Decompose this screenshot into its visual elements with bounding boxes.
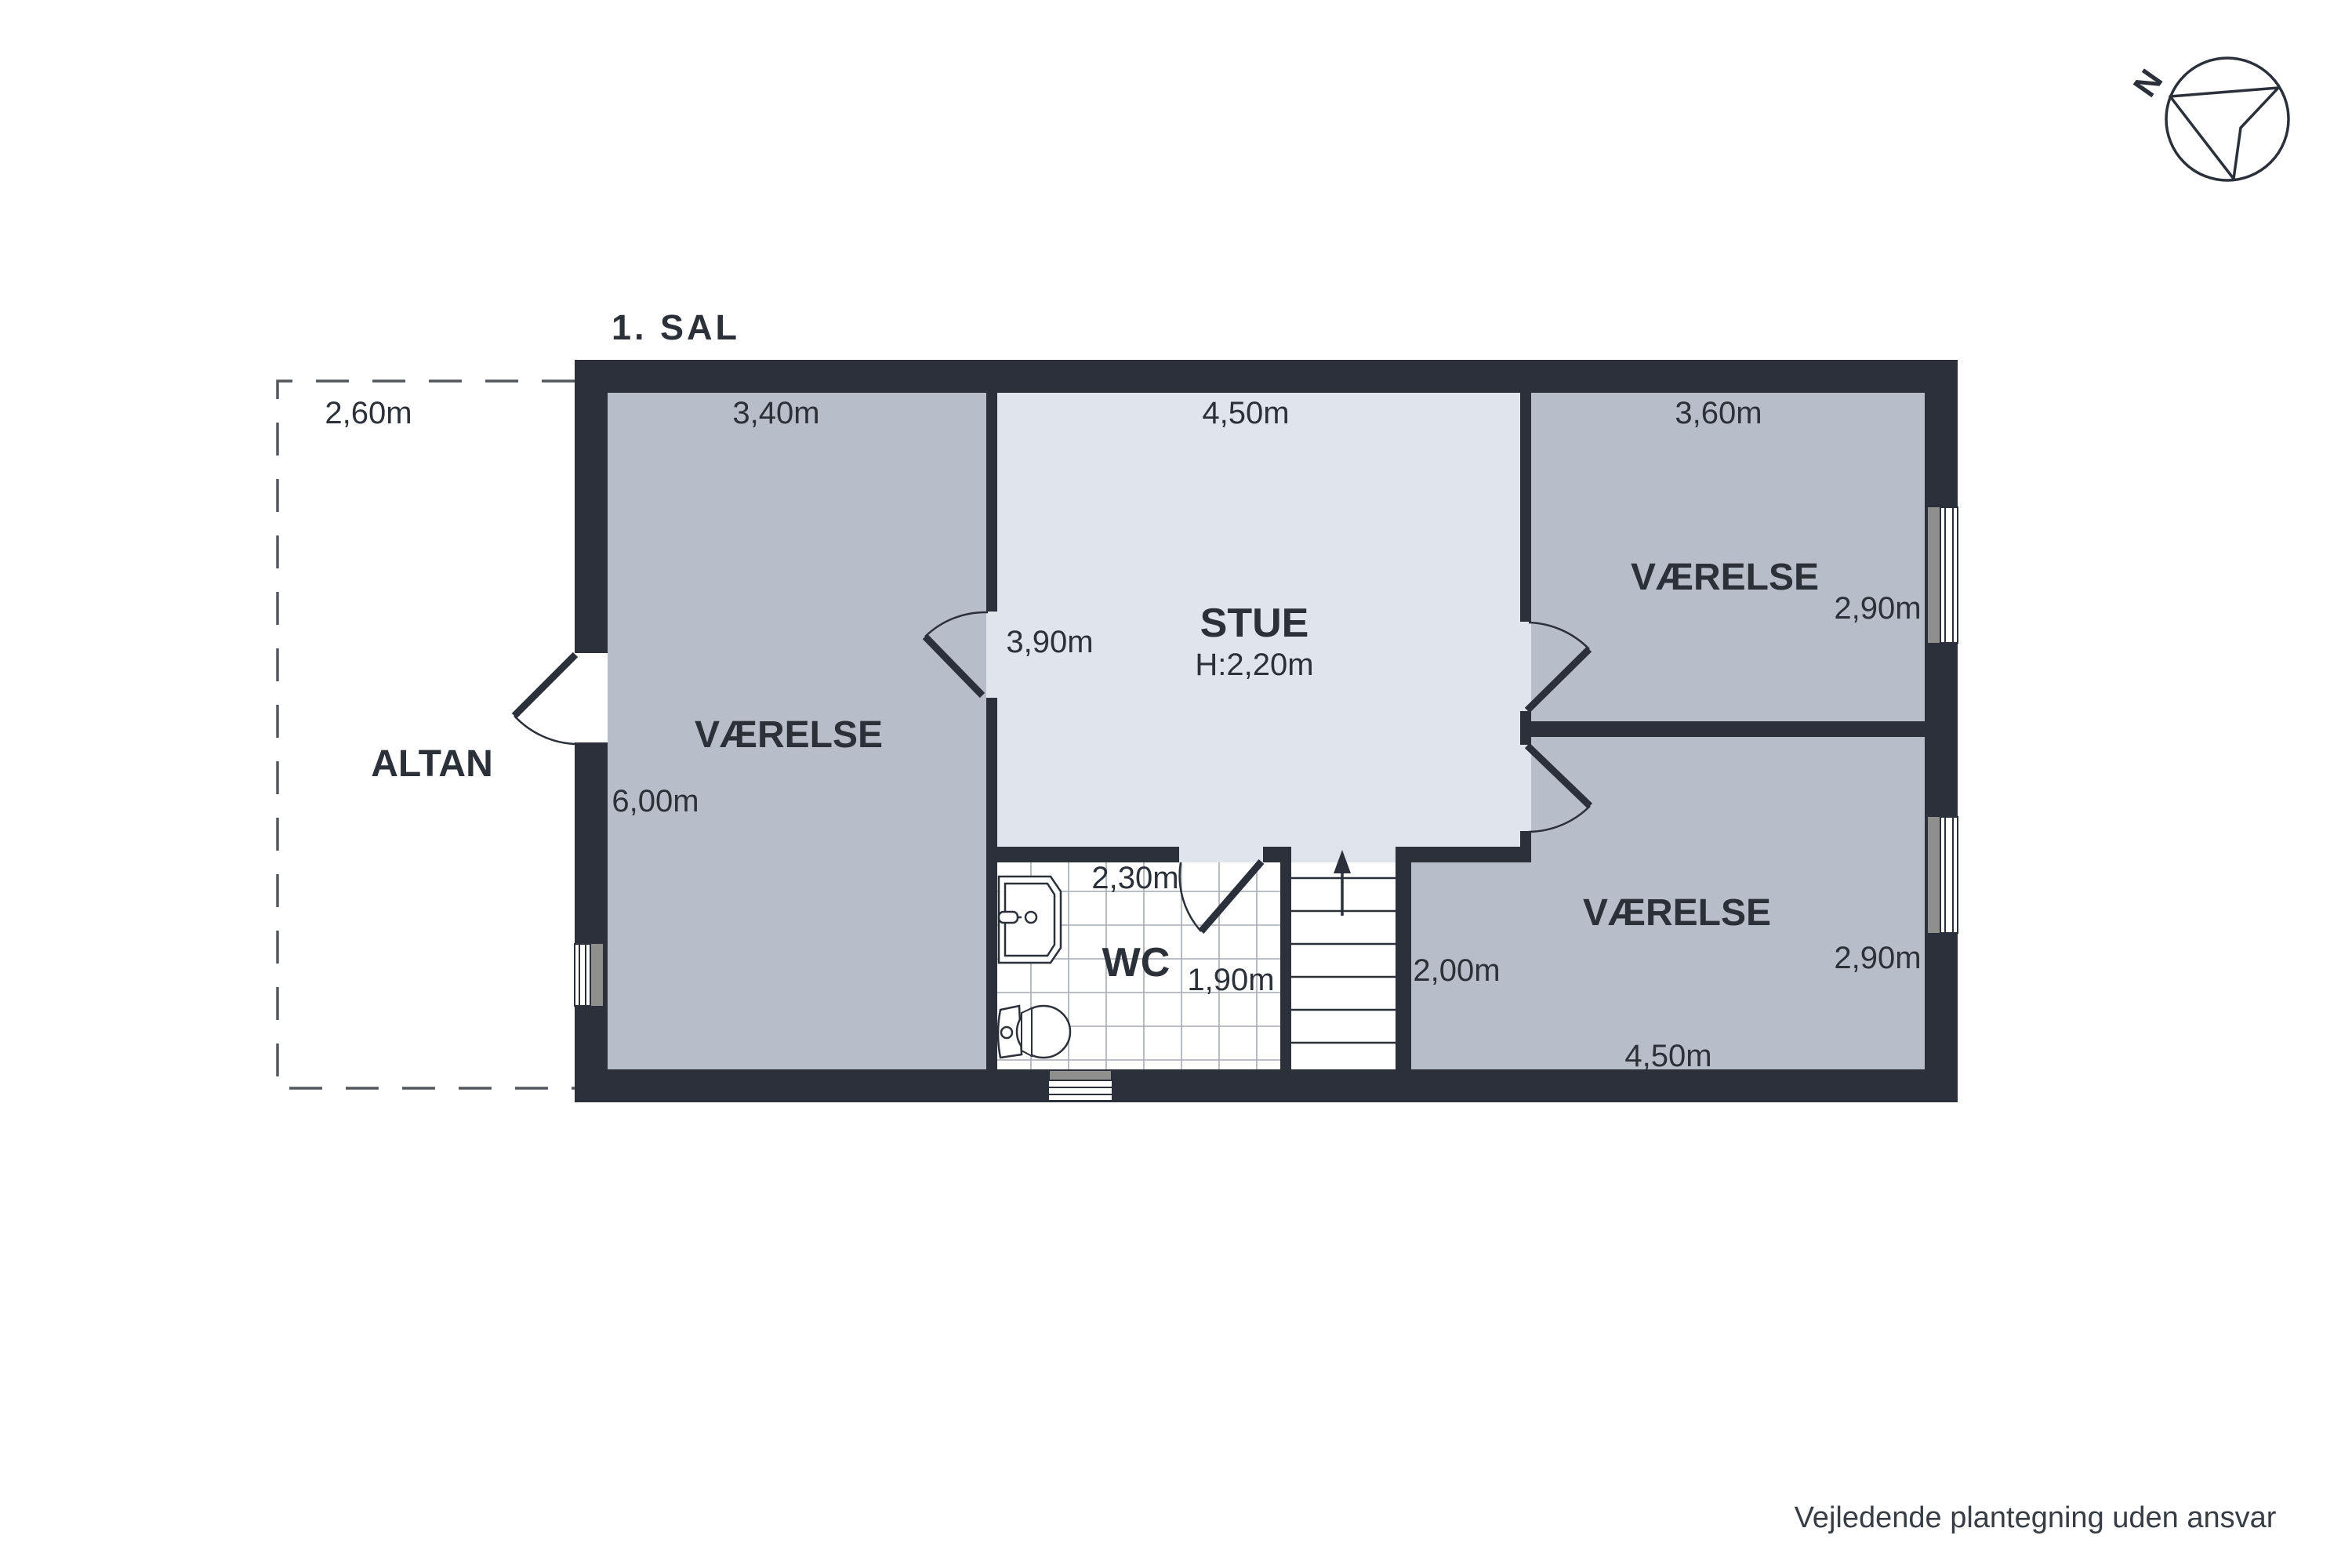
door-altan: [514, 655, 575, 744]
window-jamb: [1928, 507, 1940, 643]
window-jamb: [1928, 817, 1940, 933]
wall-divider-right-middle: [1520, 711, 1531, 745]
room-top-right-width-label: 3,60m: [1675, 396, 1762, 430]
window-right-bottom: [1928, 817, 1958, 933]
wall-divider-left-upper: [986, 393, 997, 612]
disclaimer-text: Vejledende plantegning uden ansvar: [1795, 1501, 2277, 1534]
room-bottom-right-label: VÆRELSE: [1583, 892, 1771, 934]
wall-stair-left: [1280, 847, 1291, 1076]
floor-title: 1. SAL: [612, 307, 740, 347]
room-bottom-right-height-label: 2,90m: [1834, 941, 1921, 975]
wall-outer-bottom: [575, 1069, 1958, 1102]
room-left-height-label: 6,00m: [612, 784, 699, 818]
stue-ceiling-height-label: H:2,20m: [1195, 648, 1313, 682]
altan-width-label: 2,60m: [325, 396, 412, 430]
room-left-label: VÆRELSE: [695, 714, 883, 756]
window-glass: [575, 944, 590, 1006]
door-gap-top-right: [1520, 622, 1531, 711]
compass-north-label: N: [2126, 63, 2170, 103]
wall-divider-right-rooms: [1530, 721, 1925, 737]
door-gap-left: [986, 612, 997, 698]
room-bottom-right-stairs-side-label: 2,00m: [1413, 953, 1500, 988]
room-bottom-right-width-label: 4,50m: [1624, 1039, 1711, 1073]
door-gap-bottom-right: [1520, 745, 1531, 831]
wall-outer-top: [575, 360, 1958, 393]
room-left-width-label: 3,40m: [732, 396, 819, 430]
wall-stair-right: [1396, 847, 1411, 1069]
floor-plan-page: 1. SAL 2,60m 3,40m 4,50m 3,60m VÆRELSE 2…: [0, 0, 2352, 1568]
altan-label: ALTAN: [371, 743, 493, 785]
wall-divider-left-lower: [986, 698, 997, 1069]
wall-notch: [1396, 847, 1530, 862]
wc-width-label: 2,30m: [1091, 861, 1178, 895]
altan-dashed-outline: [278, 381, 575, 1088]
wall-divider-right-upper: [1520, 393, 1531, 622]
window-glass: [1940, 507, 1958, 643]
wc-height-label: 1,90m: [1187, 963, 1274, 997]
altan-door-opening: [575, 653, 608, 742]
room-top-right-label: VÆRELSE: [1631, 557, 1819, 598]
room-top-right-height-label: 2,90m: [1834, 591, 1921, 626]
stue-label: STUE: [1200, 601, 1309, 646]
window-glass: [1048, 1080, 1112, 1101]
stue-door-side-label: 3,90m: [1006, 625, 1093, 659]
compass-circle: [2166, 58, 2288, 180]
window-jamb: [590, 944, 603, 1006]
toilet-icon: [998, 1006, 1070, 1058]
wc-label: WC: [1102, 940, 1171, 985]
wall-outer-right: [1925, 360, 1958, 1102]
window-bottom-wc: [1048, 1071, 1112, 1101]
door-swing-arc: [514, 716, 575, 744]
floor-plan-canvas: 1. SAL 2,60m 3,40m 4,50m 3,60m VÆRELSE 2…: [0, 0, 2352, 1568]
compass: N: [2126, 58, 2288, 180]
sink-icon: [999, 877, 1061, 963]
stue-width-label: 4,50m: [1202, 396, 1289, 430]
window-glass: [1940, 817, 1958, 933]
window-left: [575, 944, 603, 1006]
door-leaf: [514, 655, 575, 716]
wall-wc-top: [997, 847, 1179, 862]
window-jamb: [1050, 1071, 1111, 1080]
window-right-top: [1928, 507, 1958, 643]
